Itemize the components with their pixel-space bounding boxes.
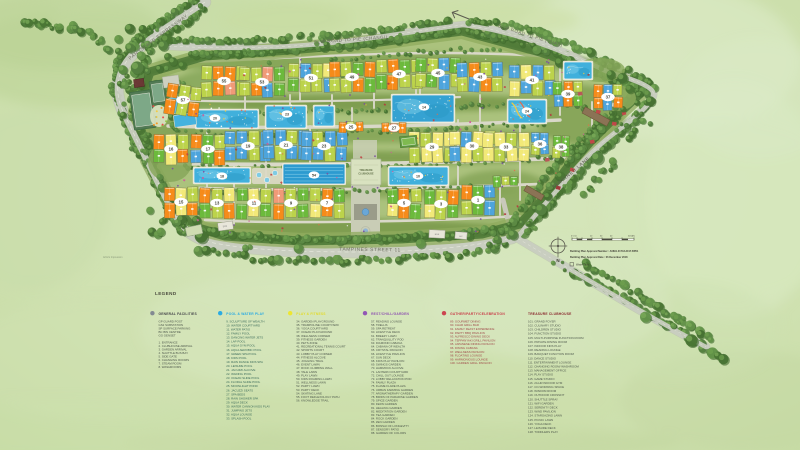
svg-text:51: 51 — [309, 76, 314, 81]
svg-text:25: 25 — [349, 125, 354, 130]
svg-text:33: 33 — [504, 145, 509, 150]
svg-text:Artist's Impression: Artist's Impression — [103, 256, 123, 259]
svg-text:Water Tank: Water Tank — [576, 263, 590, 267]
svg-text:18: 18 — [220, 174, 224, 178]
svg-text:14: 14 — [422, 105, 426, 109]
svg-text:27: 27 — [392, 126, 397, 131]
svg-text:37: 37 — [606, 95, 611, 100]
svg-text:0 5 10: 0 5 10 — [571, 236, 577, 238]
svg-text:TREASURE CLUBHOUSE: TREASURE CLUBHOUSE — [528, 312, 572, 316]
svg-text:23: 23 — [285, 112, 289, 116]
svg-text:8. WASHROOMS: 8. WASHROOMS — [159, 365, 182, 369]
svg-text:49: 49 — [350, 75, 355, 80]
svg-text:36: 36 — [538, 142, 543, 147]
svg-text:53: 53 — [260, 80, 265, 85]
svg-text:43: 43 — [478, 75, 483, 80]
svg-text:13: 13 — [215, 201, 220, 206]
svg-text:29: 29 — [430, 145, 435, 150]
svg-text:PLAY & FITNESS: PLAY & FITNESS — [296, 312, 326, 316]
svg-text:Building Plan Approval Number: Building Plan Approval Number : A0891-01… — [570, 250, 639, 253]
svg-text:100. GARDEN GRILL PAVILION: 100. GARDEN GRILL PAVILION — [450, 361, 492, 365]
svg-text:57: 57 — [181, 98, 186, 103]
svg-text:88. GARDEN OF COLORS: 88. GARDEN OF COLORS — [371, 431, 406, 435]
svg-text:128. TODDLERS PLAY: 128. TODDLERS PLAY — [528, 430, 558, 434]
svg-text:50m(R): 50m(R) — [628, 236, 635, 238]
svg-text:56. KNOWLEDGE TRAIL: 56. KNOWLEDGE TRAIL — [296, 399, 329, 403]
svg-text:45: 45 — [436, 71, 441, 76]
svg-text:10: 10 — [416, 174, 420, 178]
svg-text:54: 54 — [312, 173, 316, 177]
svg-text:N: N — [556, 258, 559, 263]
svg-text:24: 24 — [525, 109, 529, 113]
svg-text:17: 17 — [206, 147, 211, 152]
svg-text:55: 55 — [222, 79, 227, 84]
svg-text:GATHER/PARTY/CELEBRATION: GATHER/PARTY/CELEBRATION — [450, 312, 505, 316]
svg-text:16: 16 — [169, 147, 174, 152]
svg-text:39: 39 — [566, 92, 571, 97]
svg-text:TAMPINES STREET 11: TAMPINES STREET 11 — [339, 246, 401, 253]
svg-text:CLUBHOUSE: CLUBHOUSE — [358, 173, 374, 176]
svg-text:20: 20 — [213, 116, 217, 120]
svg-text:15: 15 — [179, 200, 184, 205]
svg-text:HC: HC — [459, 236, 463, 238]
svg-text:21: 21 — [284, 143, 289, 148]
svg-text:41: 41 — [530, 78, 535, 83]
svg-text:GG GENSET: GG GENSET — [159, 333, 176, 337]
svg-text:19: 19 — [246, 144, 251, 149]
svg-text:LEGEND: LEGEND — [155, 291, 177, 296]
svg-text:47: 47 — [397, 72, 402, 77]
svg-text:23: 23 — [322, 144, 327, 149]
svg-text:REST/CHILL/GARDEN: REST/CHILL/GARDEN — [371, 312, 409, 316]
svg-text:33. SPLASH POOL: 33. SPLASH POOL — [226, 417, 251, 421]
svg-text:GENERAL FACILITIES: GENERAL FACILITIES — [159, 312, 198, 316]
svg-text:38: 38 — [559, 145, 564, 150]
svg-text:Building Plan Approval Date :: Building Plan Approval Date : 06 Decembe… — [570, 256, 628, 259]
svg-text:POOL & WATER PLAY: POOL & WATER PLAY — [226, 312, 265, 316]
svg-text:ESS: ESS — [435, 234, 440, 236]
svg-text:30: 30 — [470, 144, 475, 149]
